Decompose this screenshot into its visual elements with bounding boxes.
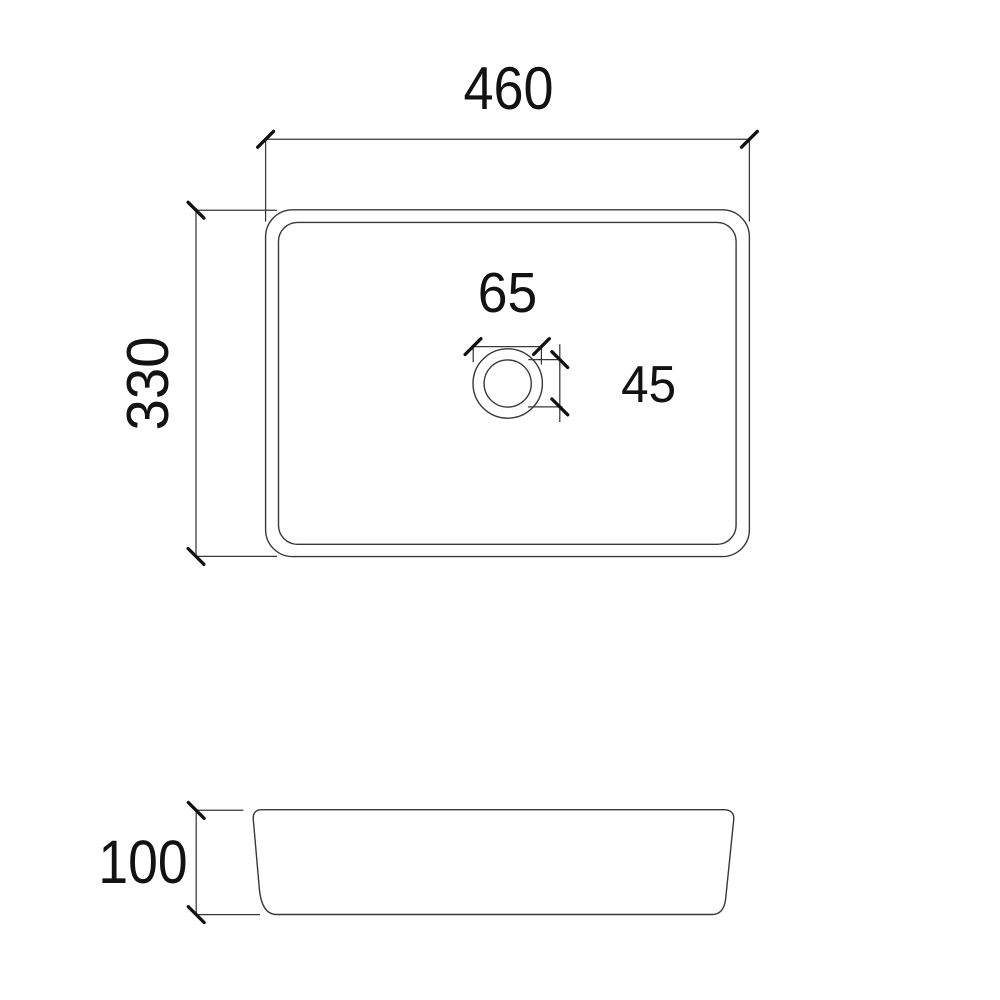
svg-text:330: 330 — [116, 336, 182, 430]
svg-text:100: 100 — [98, 829, 187, 897]
svg-text:460: 460 — [463, 55, 553, 122]
svg-text:65: 65 — [478, 261, 537, 325]
svg-text:45: 45 — [621, 355, 676, 413]
